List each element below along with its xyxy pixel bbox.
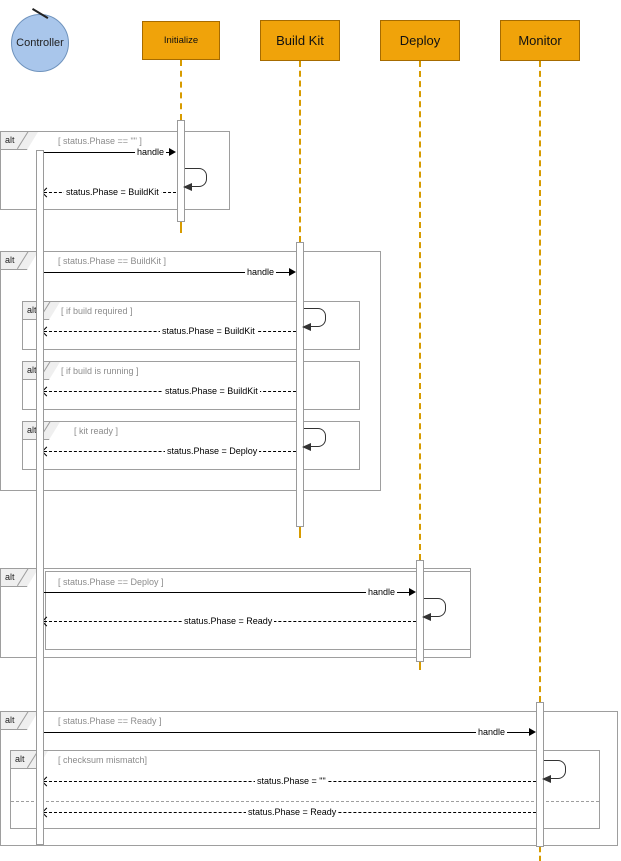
self-loop-monitor [544,760,566,779]
self-loop-initialize [185,168,207,187]
guard-condition-kit-ready: [ kit ready ] [74,426,118,436]
fragment-operator-label: alt [5,255,15,265]
message-call-monitor [44,732,529,733]
lifeline-build-kit [299,61,301,242]
message-label-handle-build-kit: handle [245,266,276,279]
fragment-operator-label: alt [5,572,15,582]
message-label-set-empty: status.Phase = "" [255,775,328,788]
loop-arrowhead-icon [302,443,311,451]
fragment-operator-tab: alt [1,132,38,150]
message-label-set-ready-2: status.Phase = Ready [246,806,338,819]
self-loop-deploy [424,598,446,617]
fragment-inner-rect [45,571,471,650]
message-label-handle-initialize: handle [135,146,166,159]
fragment-operator-label: alt [5,715,15,725]
tab-slant-edge [17,711,29,729]
tab-slant-edge [17,251,29,269]
self-loop-build-required [304,308,326,327]
loop-arrowhead-icon [183,183,192,191]
arrowhead-icon [289,268,296,276]
self-loop-kit-ready [304,428,326,447]
lifeline-initialize-stub [180,222,182,233]
guard-condition-phase-ready: [ status.Phase == Ready ] [58,716,162,726]
activation-bar-deploy [416,560,424,662]
fragment-operator-tab: alt [1,712,38,730]
lifeline-deploy [419,61,421,560]
fragment-operator-tab: alt [1,569,38,587]
message-label-handle-monitor: handle [476,726,507,739]
message-label-set-buildkit-2: status.Phase = BuildKit [160,325,257,338]
arrowhead-icon [409,588,416,596]
fragment-else-divider [11,801,599,802]
lifeline-head-monitor: Monitor [500,20,580,61]
fragment-operator-label: alt [5,135,15,145]
actor-controller: Controller [11,14,69,72]
lifeline-head-initialize: Initialize [142,21,220,60]
activation-bar-build-kit [296,242,304,527]
lifeline-monitor [539,61,541,702]
tab-slant-edge [17,568,29,586]
message-label-set-buildkit-3: status.Phase = BuildKit [163,385,260,398]
tab-slant-edge [17,131,29,149]
message-label-set-ready-1: status.Phase = Ready [182,615,274,628]
lifeline-build-kit-stub [299,527,301,538]
message-label-set-buildkit-1: status.Phase = BuildKit [64,186,161,199]
message-label-set-deploy: status.Phase = Deploy [165,445,259,458]
guard-condition-build-required: [ if build required ] [61,306,133,316]
arrowhead-icon [169,148,176,156]
loop-arrowhead-icon [422,613,431,621]
lifeline-head-deploy: Deploy [380,20,460,61]
message-label-handle-deploy: handle [366,586,397,599]
activation-bar-initialize [177,120,185,222]
lifeline-monitor-stub [539,847,541,861]
activation-bar-controller [36,150,44,845]
sequence-diagram: Controller Initialize Build Kit Deploy M… [0,0,621,861]
guard-condition-checksum-mismatch: [ checksum mismatch] [58,755,147,765]
fragment-operator-label: alt [15,754,25,764]
guard-condition-phase-empty: [ status.Phase == "" ] [58,136,142,146]
lifeline-deploy-stub [419,662,421,670]
fragment-operator-tab: alt [1,252,38,270]
guard-condition-phase-buildkit: [ status.Phase == BuildKit ] [58,256,166,266]
message-call-deploy [44,592,409,593]
lifeline-initialize [180,60,182,120]
loop-arrowhead-icon [542,775,551,783]
guard-condition-build-running: [ if build is running ] [61,366,139,376]
lifeline-head-build-kit: Build Kit [260,20,340,61]
loop-arrowhead-icon [302,323,311,331]
arrowhead-icon [529,728,536,736]
